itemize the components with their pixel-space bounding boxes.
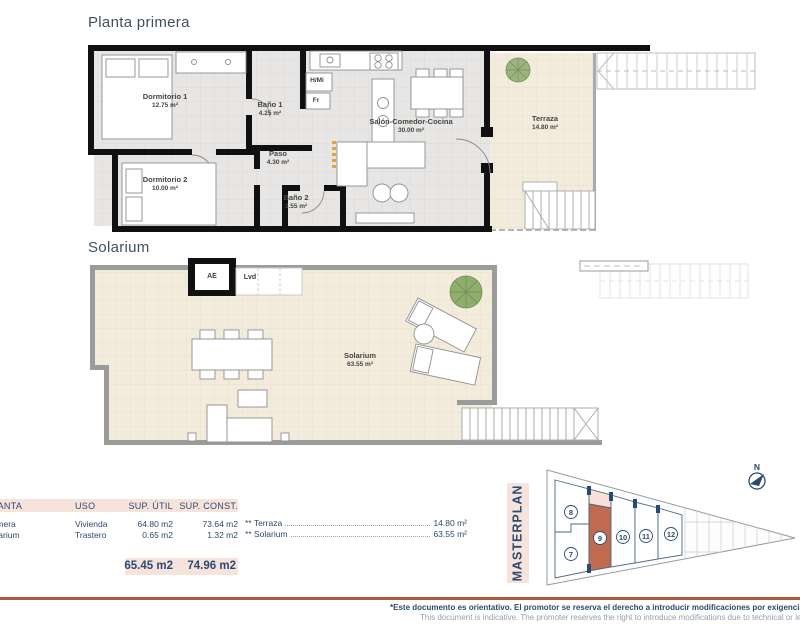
note-terraza: ** Terraza 14.80 m² bbox=[245, 518, 467, 528]
north-icon: N bbox=[749, 462, 765, 489]
cell-const-1: 73.64 m2 bbox=[165, 519, 238, 529]
masterplan: MASTERPLAN bbox=[505, 460, 800, 595]
plan2-drawing bbox=[88, 258, 758, 458]
solarium-table-icon bbox=[192, 330, 272, 379]
plant-icon bbox=[450, 276, 482, 308]
storage-box bbox=[207, 405, 227, 442]
disclaimer-en: This document is indicative. The promote… bbox=[420, 613, 800, 622]
room-label-solarium: Solarium 63.55 m² bbox=[315, 352, 405, 368]
leader-dots bbox=[285, 524, 430, 526]
cell-planta-1: Primera bbox=[0, 519, 16, 529]
plan2-canvas: Solarium 63.55 m² AE Lvd bbox=[88, 258, 758, 458]
plan1-canvas: Dormitorio 1 12.75 m² Baño 1 4.25 m² Pas… bbox=[88, 45, 758, 237]
page-title-plan1: Planta primera bbox=[88, 14, 190, 31]
coffee-table-icon bbox=[390, 184, 408, 202]
page-title-plan2: Solarium bbox=[88, 239, 150, 256]
fixture-label-fridge: Fr bbox=[294, 97, 338, 104]
plant-icon bbox=[506, 58, 530, 82]
col-header-uso: USO bbox=[75, 501, 95, 511]
unit-number-9: 9 bbox=[598, 534, 602, 543]
col-header-planta: PLANTA bbox=[0, 501, 22, 511]
room-label-bano-1: Baño 1 4.25 m² bbox=[238, 101, 302, 117]
fixture-label-lvd: Lvd bbox=[230, 274, 270, 281]
north-label: N bbox=[754, 462, 760, 472]
side-table-icon bbox=[414, 324, 434, 344]
disclaimer-es: *Este documento es orientativo. El promo… bbox=[390, 603, 800, 612]
col-header-sup-util: SUP. ÚTIL bbox=[100, 501, 173, 511]
cell-util-2: 0.65 m2 bbox=[100, 530, 173, 540]
room-label-dormitorio-2: Dormitorio 2 10.00 m² bbox=[120, 176, 210, 192]
fixture-label-ae: AE bbox=[192, 273, 232, 280]
masterplan-title: MASTERPLAN bbox=[510, 485, 524, 582]
cell-util-1: 64.80 m2 bbox=[100, 519, 173, 529]
room-label-terraza: Terraza 14.80 m² bbox=[500, 115, 590, 131]
tv-bench-icon bbox=[356, 213, 414, 223]
unit-number-11: 11 bbox=[642, 532, 650, 541]
room-label-dormitorio-1: Dormitorio 1 12.75 m² bbox=[120, 93, 210, 109]
cell-planta-2: Solarium bbox=[0, 530, 20, 540]
unit-number-7: 7 bbox=[569, 550, 573, 559]
unit-number-12: 12 bbox=[667, 530, 675, 539]
bed-2-icon bbox=[122, 163, 216, 225]
note-solarium: ** Solarium 63.55 m² bbox=[245, 529, 467, 539]
unit-number-8: 8 bbox=[569, 508, 573, 517]
fixture-label-hmi: H/Mi bbox=[294, 77, 340, 84]
accent-rule bbox=[0, 597, 800, 600]
post bbox=[188, 433, 196, 441]
post bbox=[281, 433, 289, 441]
room-label-paso: Paso 4.30 m² bbox=[246, 150, 310, 166]
total-const: 74.96 m2 bbox=[163, 560, 236, 572]
coffee-table-icon bbox=[373, 184, 391, 202]
laundry-box-icon bbox=[236, 268, 302, 295]
plan1-drawing bbox=[88, 45, 758, 237]
storage-box bbox=[227, 418, 272, 442]
party-wall-segment bbox=[580, 261, 648, 271]
wardrobe-icon bbox=[176, 52, 246, 73]
room-label-salon: Salón-Comedor-Cocina 30.00 m² bbox=[346, 118, 476, 134]
masterplan-drawing: MASTERPLAN bbox=[505, 460, 800, 595]
col-header-sup-const: SUP. CONST. bbox=[165, 501, 238, 511]
room-label-bano-2: Baño 2 3.55 m² bbox=[264, 194, 328, 210]
plan-sheet: Planta primera Solarium bbox=[0, 0, 800, 640]
exterior-stair-icon bbox=[597, 53, 755, 89]
unit-number-10: 10 bbox=[619, 533, 627, 542]
storage-box bbox=[238, 390, 267, 407]
cell-const-2: 1.32 m2 bbox=[165, 530, 238, 540]
dining-table-icon bbox=[411, 69, 463, 117]
solarium-stairs-icon bbox=[462, 408, 598, 440]
stove-icon bbox=[370, 53, 398, 70]
leader-dots bbox=[291, 535, 431, 537]
